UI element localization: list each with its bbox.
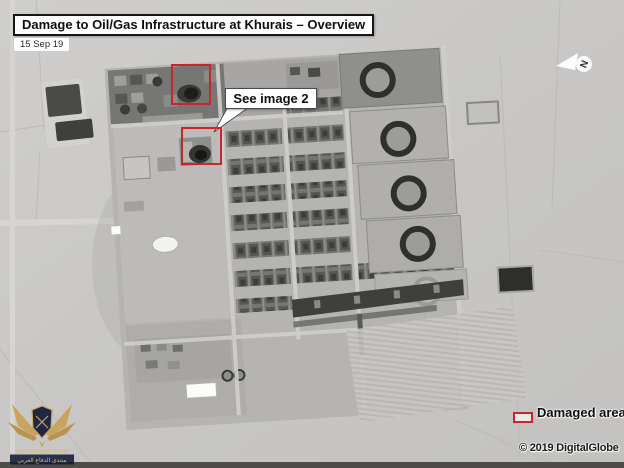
damage-area-box-1 — [171, 64, 211, 105]
date-box: 15 Sep 19 — [13, 37, 70, 52]
logo-org-text-arabic: منتدى الدفاع العربي — [17, 457, 66, 464]
storage-tank-4 — [402, 228, 434, 260]
legend-label: Damaged area — [537, 405, 624, 420]
page-title: Damage to Oil/Gas Infrastructure at Khur… — [22, 17, 365, 32]
storage-tank-1 — [362, 64, 394, 96]
image-date: 15 Sep 19 — [20, 39, 63, 50]
empty-berm-square — [467, 101, 499, 124]
satellite-backdrop — [0, 0, 624, 468]
logo-org-text: ARAB DEFENSE FORUM — [15, 449, 68, 454]
copyright-credit: © 2019 DigitalGlobe — [519, 442, 619, 454]
damage-area-box-2 — [181, 127, 222, 165]
dark-pond-east — [498, 266, 534, 293]
annotated-satellite-image: N Damage to Oil/Gas Infrastructure at Kh… — [0, 0, 624, 468]
callout-label: See image 2 — [233, 91, 308, 106]
image-bottom-strip — [0, 462, 624, 468]
title-box: Damage to Oil/Gas Infrastructure at Khur… — [13, 14, 374, 36]
arab-defense-forum-logo: ARAB DEFENSE FORUM منتدى الدفاع العربي — [4, 392, 80, 468]
legend-damaged-area-swatch — [513, 412, 533, 423]
storage-tank-3 — [393, 177, 425, 209]
white-building — [186, 382, 217, 398]
see-image-callout: See image 2 — [225, 88, 317, 109]
storage-tank-2 — [382, 123, 414, 155]
logo-plume — [39, 440, 45, 448]
